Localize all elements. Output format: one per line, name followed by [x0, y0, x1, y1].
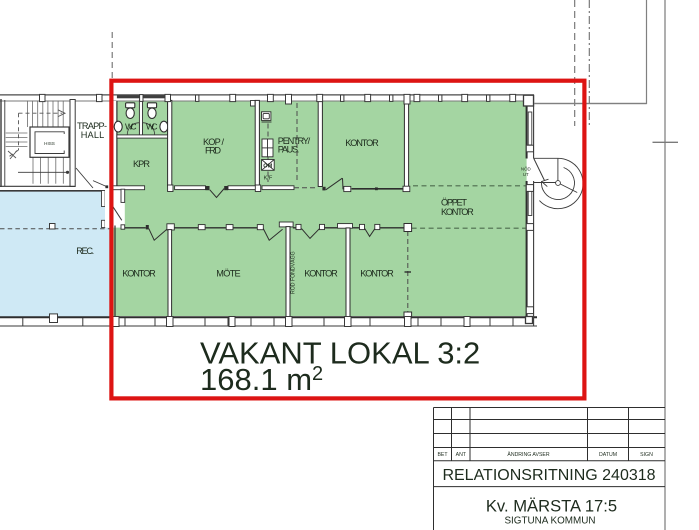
- svg-text:KONTOR: KONTOR: [441, 207, 474, 217]
- svg-text:REC.: REC.: [76, 246, 94, 256]
- svg-text:SIGTUNA KOMMUN: SIGTUNA KOMMUN: [504, 516, 595, 527]
- svg-text:WC: WC: [125, 122, 137, 132]
- svg-text:UT: UT: [523, 172, 529, 177]
- svg-text:Kv. MÄRSTA 17:5: Kv. MÄRSTA 17:5: [486, 497, 617, 516]
- svg-text:DATUM: DATUM: [599, 452, 617, 458]
- svg-text:KONTOR: KONTOR: [122, 268, 156, 278]
- svg-text:KONTOR: KONTOR: [360, 268, 394, 278]
- svg-text:RELATIONSRITNING 240318: RELATIONSRITNING 240318: [442, 467, 655, 484]
- svg-text:WC: WC: [146, 122, 158, 132]
- svg-text:FRD: FRD: [205, 146, 221, 156]
- svg-text:MÖTE: MÖTE: [216, 268, 240, 278]
- svg-text:KONTOR: KONTOR: [345, 138, 379, 148]
- svg-text:OM: OM: [263, 163, 272, 169]
- svg-text:168.1 m2: 168.1 m2: [200, 362, 323, 397]
- svg-text:NÖD: NÖD: [521, 167, 531, 172]
- svg-text:HALL: HALL: [81, 130, 105, 140]
- svg-text:PAUS.: PAUS.: [278, 145, 300, 155]
- svg-text:BET: BET: [437, 452, 448, 458]
- svg-text:K/F: K/F: [264, 176, 273, 182]
- svg-text:HISS: HISS: [44, 141, 55, 146]
- svg-text:ANT: ANT: [456, 452, 467, 458]
- svg-text:SIGN: SIGN: [640, 452, 653, 458]
- svg-text:ÄNDRING AVSER: ÄNDRING AVSER: [507, 451, 550, 458]
- svg-text:RÖD FONDVÄGG: RÖD FONDVÄGG: [290, 251, 297, 294]
- svg-text:KPR: KPR: [133, 159, 150, 169]
- svg-text:KONTOR: KONTOR: [304, 268, 338, 278]
